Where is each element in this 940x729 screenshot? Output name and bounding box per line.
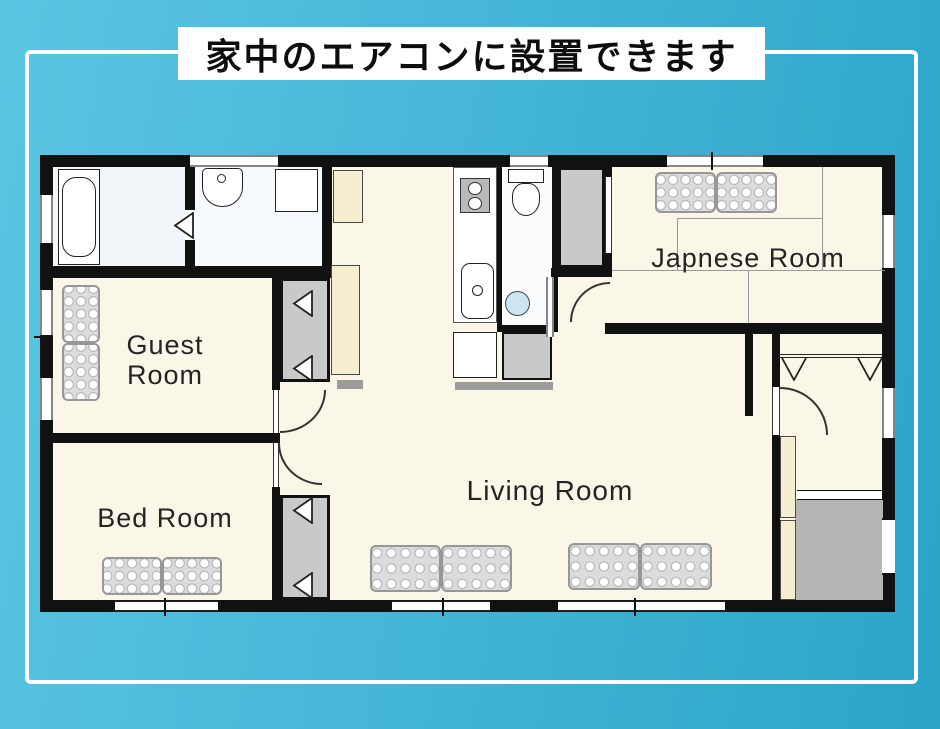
infographic-canvas: 家中のエアコンに設置できます — [0, 0, 940, 729]
window-icon — [190, 155, 278, 167]
sliding-door — [605, 177, 612, 253]
door-swing-icon — [570, 282, 610, 322]
threshold — [455, 382, 553, 390]
burner-icon — [468, 197, 482, 210]
wall — [551, 268, 606, 277]
wall — [272, 278, 280, 390]
room-label-bed: Bed Room — [65, 504, 265, 534]
window-icon — [40, 195, 53, 243]
closet-door-icon — [292, 572, 313, 599]
wall — [605, 323, 885, 334]
toilet-tank — [508, 169, 544, 183]
futon-icon — [716, 172, 777, 213]
wall — [497, 167, 502, 325]
shoe-cabinet — [780, 520, 796, 600]
refrigerator-icon — [453, 332, 497, 378]
window-icon — [882, 215, 895, 268]
closet — [558, 167, 605, 268]
door-swing-icon — [280, 390, 326, 433]
wall — [40, 266, 332, 278]
sliding-door — [546, 277, 554, 337]
window-tick — [442, 598, 444, 616]
window-icon — [882, 388, 895, 438]
window-tick — [634, 598, 636, 616]
faucet-icon — [217, 174, 226, 183]
stove-icon — [460, 178, 490, 213]
window-icon — [558, 600, 725, 612]
toilet-icon — [512, 183, 540, 216]
window-icon — [392, 600, 490, 612]
door-swing-icon — [173, 212, 194, 239]
window-icon — [667, 155, 763, 167]
washing-machine-icon — [275, 169, 318, 212]
folding-door-icon — [857, 357, 883, 381]
bathtub-icon — [62, 177, 96, 257]
room-label-guest: Guest Room — [85, 331, 245, 390]
window-icon — [40, 378, 53, 420]
burner-icon — [468, 182, 482, 195]
futon-icon — [441, 545, 512, 592]
tatami-line — [677, 218, 823, 219]
wall — [185, 167, 195, 210]
tatami-line — [748, 271, 749, 323]
door-opening — [273, 390, 279, 433]
room-label-japanese: Japnese Room — [613, 244, 883, 274]
wall — [40, 155, 895, 167]
wall — [772, 334, 780, 387]
window-tick — [164, 598, 166, 616]
wall — [745, 334, 753, 416]
wall — [185, 240, 195, 268]
kitchen-sink-icon — [461, 263, 494, 319]
cabinet — [333, 170, 363, 223]
faucet-icon — [472, 285, 483, 296]
closet-door-icon — [292, 290, 313, 317]
room-label-living: Living Room — [400, 476, 700, 507]
door-opening — [772, 387, 780, 435]
futon-icon — [640, 543, 712, 590]
window-icon — [115, 600, 218, 612]
futon-icon — [370, 545, 441, 592]
window-icon — [40, 290, 53, 335]
door-swing-icon — [780, 387, 828, 435]
closet-door-icon — [292, 497, 313, 524]
shoe-cabinet — [780, 436, 796, 518]
wall — [272, 487, 280, 600]
futon-icon — [655, 172, 716, 213]
window-tick — [711, 152, 713, 170]
washbasin-icon — [202, 168, 243, 207]
storage-box — [502, 332, 552, 380]
entrance-genkan — [795, 500, 883, 600]
entrance-door — [882, 518, 895, 575]
wall — [40, 433, 280, 443]
cabinet — [331, 265, 360, 375]
threshold — [337, 380, 363, 389]
folding-door-icon — [781, 357, 807, 381]
door-swing-icon — [278, 443, 322, 485]
wall — [772, 435, 780, 600]
hand-basin-icon — [505, 291, 530, 316]
closet-door-icon — [292, 355, 313, 382]
page-title: 家中のエアコンに設置できます — [205, 28, 737, 80]
wall — [322, 167, 332, 268]
floor-plan: Guest Room Bed Room Living Room Japnese … — [40, 155, 895, 612]
window-tick — [34, 336, 53, 338]
futon-icon — [162, 557, 222, 595]
window-icon — [510, 155, 548, 167]
futon-icon — [102, 557, 162, 595]
title-banner: 家中のエアコンに設置できます — [178, 27, 765, 80]
futon-icon — [568, 543, 640, 590]
entrance-step — [797, 490, 882, 500]
